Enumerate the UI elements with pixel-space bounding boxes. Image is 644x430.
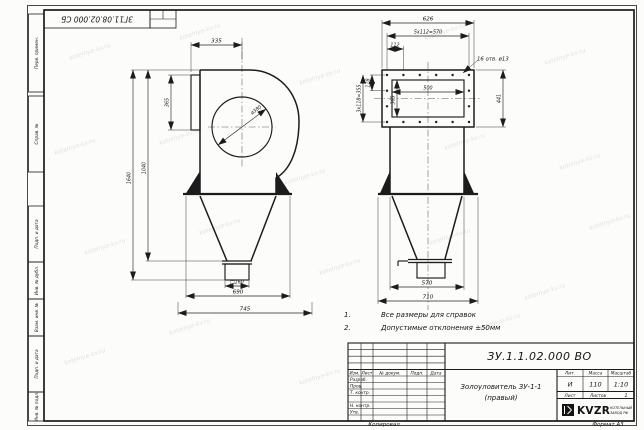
dim-hole-spacing-v: 3x118=355 <box>357 84 363 112</box>
margin-label: Подп. и дата <box>34 219 40 249</box>
col-data: Дата <box>429 371 441 377</box>
scale-header: Масштаб <box>611 371 632 377</box>
margin-label: Справ. № <box>34 123 40 144</box>
watermark-text: kotelnye-kv.ru <box>68 42 111 62</box>
dim-base-outer: 745 <box>240 307 251 313</box>
note-1-number: 1. <box>344 311 351 319</box>
row-razrab: Разраб. <box>350 377 367 383</box>
corner-stamp: ЗГ11.08.02.000 СБ <box>44 10 176 28</box>
dim-inlet-height: 365 <box>165 98 171 107</box>
dim-flange-height: 441 <box>497 94 503 103</box>
corner-stamp-number: ЗГ11.08.02.000 СБ <box>61 15 133 24</box>
dim-circle-diameter: ø380 <box>249 104 263 117</box>
dim-body-height: 1040 <box>142 162 148 174</box>
dim-base-outer-front: 710 <box>423 295 434 301</box>
ash-outlet-box-side <box>225 264 249 280</box>
watermark-text: kotelnye-kv.ru <box>558 152 601 172</box>
dim-outlet-square: □160 <box>230 280 244 286</box>
col-izm: Изм. <box>349 371 359 377</box>
row-prov: Пров. <box>350 384 363 390</box>
title-block: Изм. Лист № докум. Подп. Дата Разраб. Пр… <box>348 343 634 421</box>
watermark-text: kotelnye-kv.ru <box>588 212 631 232</box>
col-podp: Подп. <box>410 371 423 377</box>
dim-base-inner: 690 <box>233 290 244 296</box>
scale-value: 1:10 <box>614 381 629 389</box>
col-list: Лист <box>361 371 373 377</box>
dim-opening-width: 500 <box>423 86 432 92</box>
part-title-line1: Золоуловитель ЗУ-1-1 <box>460 383 541 391</box>
mass-value: 110 <box>589 381 601 389</box>
note-2-number: 2. <box>344 324 351 332</box>
dim-inlet-depth: 335 <box>211 39 222 45</box>
watermark-text: kotelnye-kv.ru <box>443 132 486 152</box>
format-label: Формат А3 <box>592 422 624 428</box>
watermark-text: kotelnye-kv.ru <box>53 137 96 157</box>
watermark-text: kotelnye-kv.ru <box>318 257 361 277</box>
logo-subtext-2: ЗАВОД РФ <box>610 411 628 415</box>
manufacturer-logo: KVZR КОТЕЛЬНЫЙ ЗАВОД РФ <box>562 404 632 417</box>
dim-hole-spacing-h: 5x112=570 <box>414 30 442 36</box>
dim-first-hole: 112 <box>390 43 399 49</box>
inlet-flange-side <box>191 75 200 130</box>
watermark-text: kotelnye-kv.ru <box>283 167 326 187</box>
sheet-label: Лист <box>564 393 576 399</box>
drawing-sheet: kotelnye-kv.ru kotelnye-kv.ru kotelnye-k… <box>0 0 644 430</box>
lit-header: Лит. <box>564 371 575 377</box>
dim-opening-height: 365 <box>391 95 397 104</box>
watermark-text: kotelnye-kv.ru <box>63 347 106 367</box>
watermark-text: kotelnye-kv.ru <box>298 367 341 387</box>
sheets-value: 1 <box>624 393 627 399</box>
col-doc: № докум. <box>378 371 400 377</box>
margin-label: Перв. примен. <box>34 37 40 69</box>
holes-note: 16 отв. ø13 <box>477 57 509 63</box>
front-view: 626 5x112=570 112 118 3x118=355 441 500 … <box>357 17 510 311</box>
row-tkontr: Т. контр. <box>350 390 370 396</box>
watermark-text: kotelnye-kv.ru <box>543 47 586 67</box>
margin-column: Перв. примен. Справ. № Подп. и дата Инв.… <box>29 14 45 421</box>
dim-base-inner-front: 570 <box>422 281 433 287</box>
watermark-text: kotelnye-kv.ru <box>428 227 471 247</box>
doc-number: ЗУ.1.1.02.000 ВО <box>487 350 591 363</box>
part-title-line2: (правый) <box>485 394 518 402</box>
drawing-canvas: kotelnye-kv.ru kotelnye-kv.ru kotelnye-k… <box>0 0 644 430</box>
watermark-text: kotelnye-kv.ru <box>198 217 241 237</box>
ash-outlet-box-front <box>417 263 445 279</box>
row-utv: Утв. <box>350 410 359 416</box>
watermark-layer: kotelnye-kv.ru kotelnye-kv.ru kotelnye-k… <box>53 22 631 387</box>
dim-flange-width: 626 <box>423 17 434 23</box>
dim-total-height: 1640 <box>127 172 133 184</box>
copied-label: Копировал <box>368 422 400 428</box>
sheets-label: Листов <box>589 393 607 399</box>
row-nkontr: Н. контр. <box>350 403 371 409</box>
note-2-text: Допустимые отклонения ±50мм <box>380 324 501 332</box>
margin-label: Подп. и дата <box>34 349 40 379</box>
logo-subtext-1: КОТЕЛЬНЫЙ <box>610 405 632 410</box>
notes-block: 1. Все размеры для справок 2. Допустимые… <box>344 311 501 332</box>
watermark-text: kotelnye-kv.ru <box>298 67 341 87</box>
mass-header: Масса <box>589 371 603 377</box>
note-1-text: Все размеры для справок <box>381 311 477 319</box>
margin-label: Инв. № дубл. <box>34 266 40 295</box>
side-view: ø380 335 365 1040 1640 □160 690 <box>127 38 313 315</box>
margin-label: Взам. инв. № <box>34 302 40 332</box>
dim-hole-step-v: 118 <box>366 78 372 87</box>
watermark-text: kotelnye-kv.ru <box>83 237 126 257</box>
margin-label: Инв. № подл. <box>34 392 40 422</box>
watermark-text: kotelnye-kv.ru <box>168 317 211 337</box>
watermark-text: kotelnye-kv.ru <box>523 282 566 302</box>
volute-outline <box>200 70 299 194</box>
lit-value: И <box>568 381 573 389</box>
logo-text: KVZR <box>577 405 610 417</box>
